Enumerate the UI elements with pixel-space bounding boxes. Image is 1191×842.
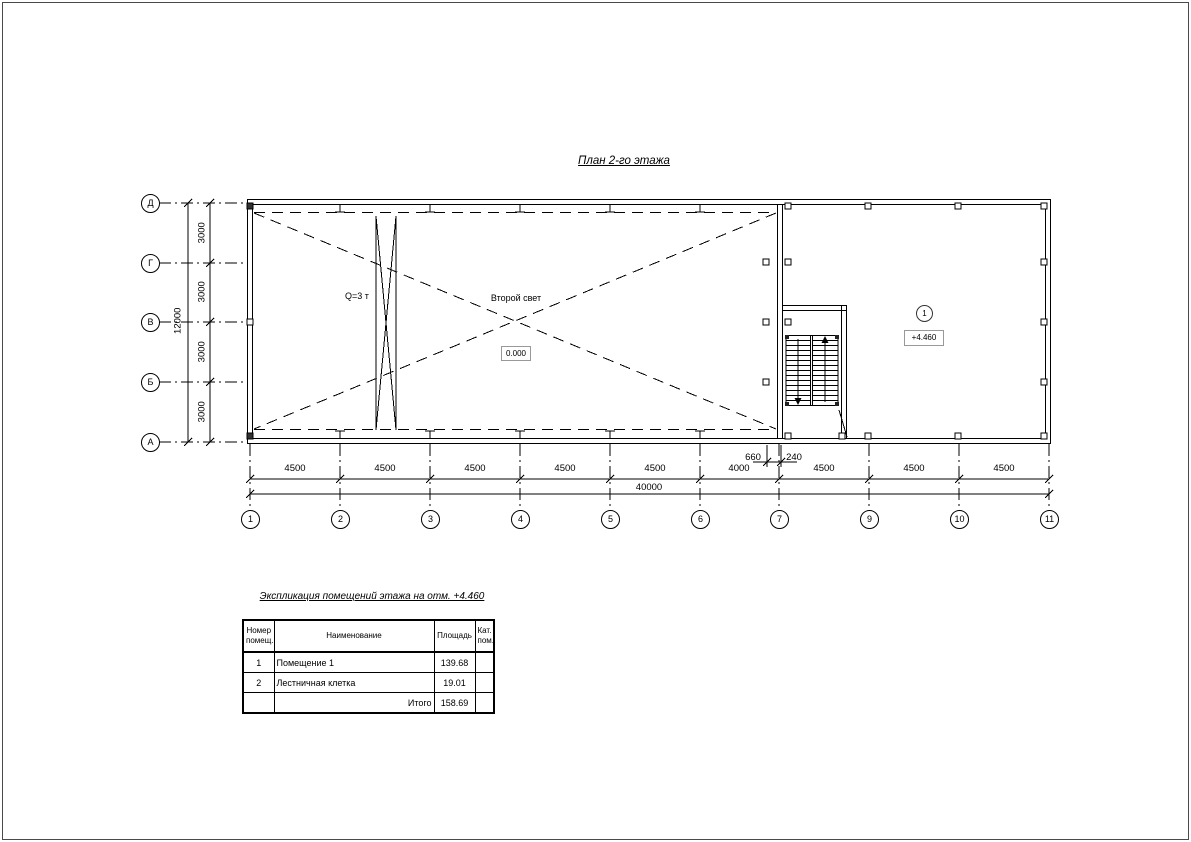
explication-table: Номер помещ. Наименование Площадь Кат. п… [242, 619, 495, 714]
top-wall-columns [335, 205, 705, 212]
header-name: Наименование [274, 620, 434, 652]
axis-bubble-col-11: 11 [1040, 510, 1059, 529]
dim-label: 4500 [804, 464, 844, 474]
cell-room-name: Помещение 1 [274, 652, 434, 673]
crane-capacity-label: Q=3 т [345, 292, 369, 301]
cell-room-cat [475, 673, 494, 693]
cell-room-name: Лестничная клетка [274, 673, 434, 693]
dimension-ticks [184, 199, 1053, 498]
drawing-sheet: { "title": "План 2-го этажа", "plan": { … [0, 0, 1191, 842]
cell-empty [475, 693, 494, 714]
cell-room-area: 139.68 [434, 652, 475, 673]
drawing-title: План 2-го этажа [534, 155, 714, 167]
dim-label: 4500 [275, 464, 315, 474]
void-dashed-lines [254, 213, 776, 430]
dim-label: 4000 [719, 464, 759, 474]
crane-beam [376, 216, 396, 430]
table-header-row: Номер помещ. Наименование Площадь Кат. п… [243, 620, 494, 652]
elevation-mark-zero: 0.000 [501, 346, 531, 361]
dim-door-right: 240 [782, 453, 806, 463]
dim-row-seg: 3000 [197, 215, 207, 251]
header-area: Площадь [434, 620, 475, 652]
total-label: Итого [274, 693, 434, 714]
floor-plan-linework [0, 0, 1191, 842]
axis-bubble-row-v: В [141, 313, 160, 332]
table-row: 1 Помещение 1 139.68 [243, 652, 494, 673]
axis-bubble-col-2: 2 [331, 510, 350, 529]
dim-label: 4500 [984, 464, 1024, 474]
axis-bubble-row-b: Б [141, 373, 160, 392]
cell-room-number: 1 [243, 652, 274, 673]
dividing-wall [778, 204, 783, 439]
table-row: 2 Лестничная клетка 19.01 [243, 673, 494, 693]
elevation-mark-floor: +4.460 [904, 330, 944, 346]
cell-room-area: 19.01 [434, 673, 475, 693]
explication-title: Экспликация помещений этажа на отм. +4.4… [252, 591, 492, 602]
axis-bubble-row-g: Г [141, 254, 160, 273]
room-number-tag: 1 [916, 305, 933, 322]
axis-bubble-col-7: 7 [770, 510, 789, 529]
dim-label: 4500 [545, 464, 585, 474]
dim-label: 4500 [365, 464, 405, 474]
dim-door-left: 660 [741, 453, 765, 463]
cell-room-cat [475, 652, 494, 673]
axis-bubble-col-1: 1 [241, 510, 260, 529]
total-area: 158.69 [434, 693, 475, 714]
dim-label: 4500 [894, 464, 934, 474]
second-light-label: Второй свет [476, 294, 556, 303]
dim-label: 4500 [455, 464, 495, 474]
cell-room-number: 2 [243, 673, 274, 693]
axis-bubble-col-4: 4 [511, 510, 530, 529]
header-category: Кат. пом. [475, 620, 494, 652]
dim-row-total: 12000 [173, 299, 183, 343]
dim-row-seg: 3000 [197, 334, 207, 370]
axis-bubble-col-5: 5 [601, 510, 620, 529]
stairwell [783, 305, 847, 439]
dimension-lines [188, 203, 1049, 494]
header-room-number: Номер помещ. [243, 620, 274, 652]
bottom-wall-columns [335, 431, 705, 438]
axis-bubble-col-3: 3 [421, 510, 440, 529]
axis-bubble-col-6: 6 [691, 510, 710, 529]
axis-bubble-row-d: Д [141, 194, 160, 213]
dim-total-label: 40000 [629, 483, 669, 493]
dim-row-seg: 3000 [197, 274, 207, 310]
axis-bubble-row-a: А [141, 433, 160, 452]
dim-label: 4500 [635, 464, 675, 474]
axis-bubble-col-9: 9 [860, 510, 879, 529]
table-total-row: Итого 158.69 [243, 693, 494, 714]
dim-row-seg: 3000 [197, 394, 207, 430]
cell-empty [243, 693, 274, 714]
exterior-walls [248, 200, 1051, 444]
axis-bubble-col-10: 10 [950, 510, 969, 529]
